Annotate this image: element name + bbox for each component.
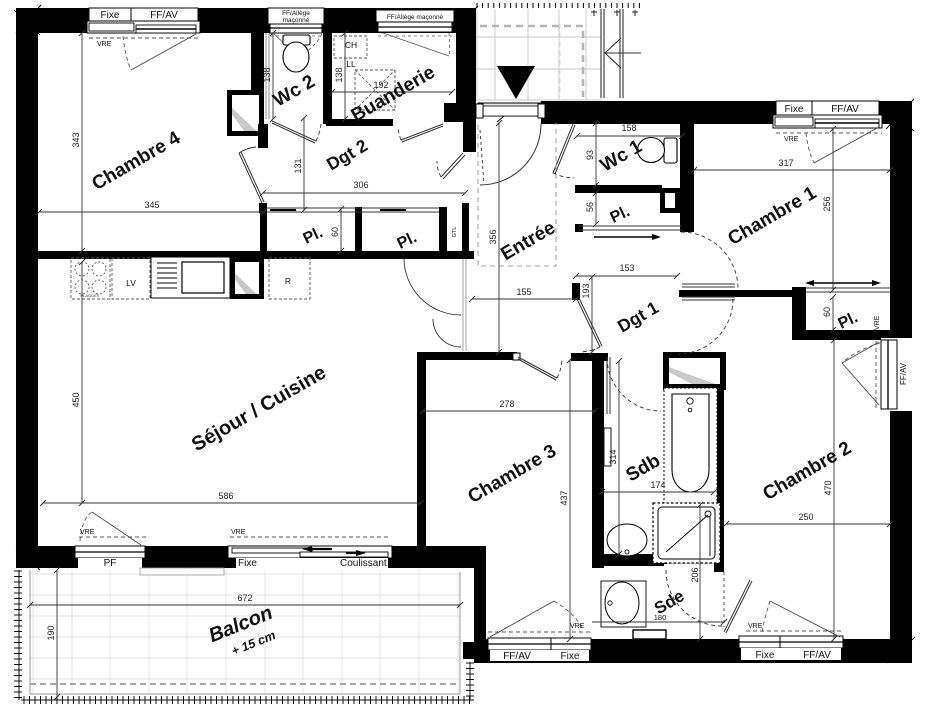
svg-text:450: 450 [71,392,81,407]
svg-text:GTL: GTL [452,227,458,238]
svg-text:153: 153 [619,263,634,273]
svg-text:FF/Allège maçonné: FF/Allège maçonné [387,14,444,21]
svg-text:190: 190 [46,625,56,640]
svg-text:343: 343 [71,132,81,147]
svg-text:356: 356 [488,229,498,244]
svg-text:180: 180 [654,613,667,622]
svg-text:158: 158 [621,123,636,133]
svg-text:306: 306 [353,180,368,190]
svg-text:56: 56 [585,202,595,212]
svg-text:VRE: VRE [80,529,95,536]
svg-text:131: 131 [293,158,303,173]
svg-text:60: 60 [330,227,340,237]
svg-text:VRE: VRE [748,623,763,630]
svg-text:138: 138 [334,67,344,82]
svg-text:CH: CH [345,40,357,50]
svg-text:FF/AV: FF/AV [831,104,859,115]
svg-text:PF: PF [104,558,117,569]
svg-text:155: 155 [516,287,531,297]
svg-text:maçonné: maçonné [283,17,310,24]
svg-text:VRE: VRE [97,41,112,48]
svg-text:60: 60 [822,307,832,317]
svg-text:FF/AV: FF/AV [803,650,831,661]
svg-text:FF/AV: FF/AV [899,362,908,385]
svg-text:LL: LL [346,59,356,69]
svg-text:193: 193 [581,283,591,298]
svg-text:174: 174 [650,480,665,490]
svg-text:138: 138 [262,67,272,82]
svg-text:672: 672 [237,593,252,603]
svg-text:FF/AV: FF/AV [150,10,178,21]
svg-text:Fixe: Fixe [238,558,257,569]
svg-text:VRE: VRE [784,136,799,143]
svg-text:437: 437 [559,490,569,505]
svg-text:93: 93 [585,150,595,160]
svg-text:R: R [285,276,291,286]
svg-text:VRE: VRE [231,529,246,536]
svg-text:VRE: VRE [874,315,881,330]
svg-text:FF/AV: FF/AV [503,651,531,662]
svg-text:278: 278 [499,399,514,409]
svg-text:586: 586 [218,491,233,501]
svg-text:PLAQUES: PLAQUES [81,293,100,298]
svg-text:206: 206 [690,567,700,582]
svg-text:LV: LV [126,278,136,288]
svg-text:250: 250 [798,512,813,522]
svg-text:VRE: VRE [570,623,585,630]
svg-text:317: 317 [778,158,793,168]
svg-text:Fixe: Fixe [561,651,580,662]
svg-text:Fixe: Fixe [785,104,804,115]
svg-text:Coulissant: Coulissant [340,558,387,569]
svg-text:Fixe: Fixe [756,650,775,661]
svg-text:Fixe: Fixe [101,10,120,21]
svg-text:256: 256 [822,196,832,211]
svg-text:314: 314 [608,449,618,464]
svg-text:470: 470 [823,480,833,495]
svg-text:345: 345 [144,200,159,210]
svg-text:FF/Allège: FF/Allège [282,10,310,17]
